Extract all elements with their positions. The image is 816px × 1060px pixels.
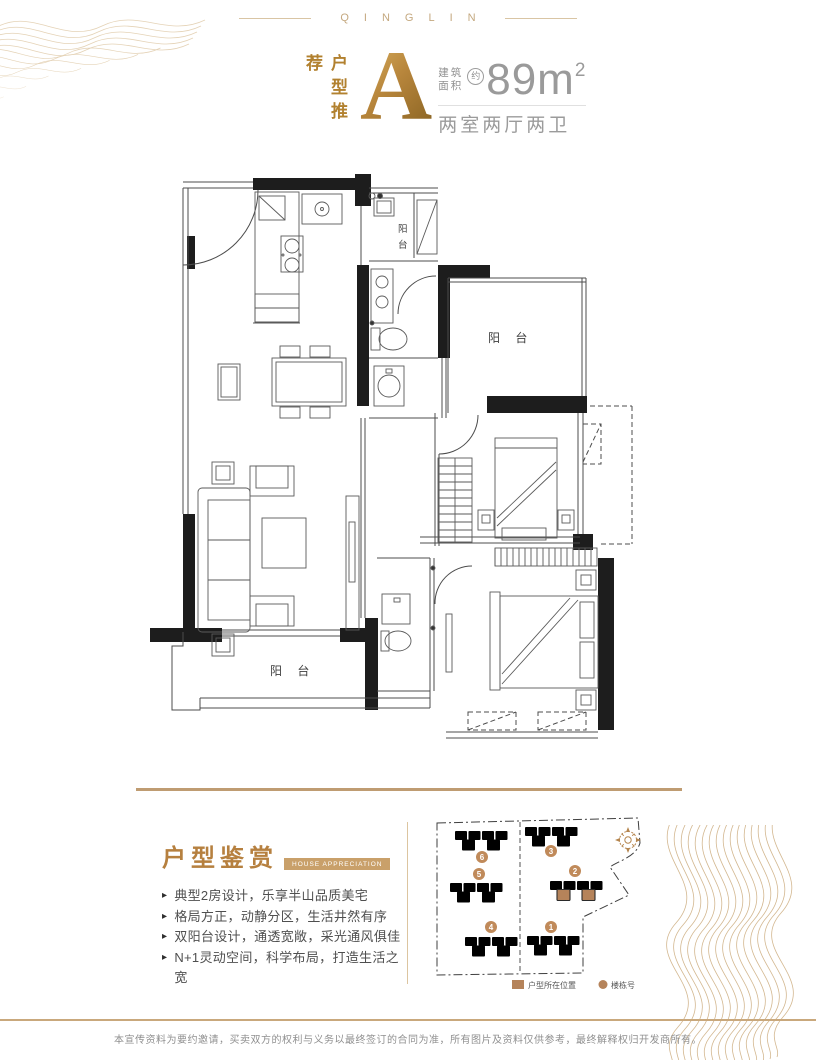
legend-building-swatch: [599, 980, 608, 989]
appreciation-title: 户型鉴赏: [162, 838, 278, 873]
bullet-arrow-icon: [162, 948, 167, 989]
compass-icon: [615, 827, 641, 853]
brand-rule-left: [239, 18, 311, 19]
area-number: 89m: [486, 55, 575, 104]
building-cluster-5: 5: [450, 868, 503, 903]
building-number: 4: [489, 923, 494, 932]
footer-divider: [0, 1019, 816, 1021]
unit-letter: A: [360, 44, 432, 128]
balcony-mid-label-2: 台: [398, 239, 408, 251]
building-number: 1: [549, 923, 554, 932]
unit-header: 户型推荐 A 建筑 面积 约 89m2 两室两厅两卫: [300, 44, 586, 142]
structural-walls: [150, 174, 614, 730]
building-cluster-6: 6: [455, 831, 508, 863]
legend-building-label: 楼栋号: [611, 980, 635, 990]
rooms-label: 两室两厅两卫: [438, 105, 586, 137]
building-cluster-3: 3: [525, 827, 578, 857]
balcony-top-label: 阳 台: [488, 330, 533, 345]
appreciation-section: 户型鉴赏 HOUSE APPRECIATION 典型2房设计，乐享半山品质美宅 …: [162, 838, 407, 989]
recommend-label: 户型推荐: [300, 54, 350, 142]
area-exponent: 2: [575, 60, 587, 81]
bullet-text: N+1灵动空间，科学布局，打造生活之宽: [174, 948, 407, 989]
area-label: 建筑 面积: [438, 67, 463, 93]
bullet-item: 双阳台设计，通透宽敞，采光通风俱佳: [162, 927, 407, 948]
highlighted-unit: [557, 890, 570, 901]
section-divider: [136, 788, 682, 791]
bullet-text: 格局方正，动静分区，生活井然有序: [174, 907, 387, 928]
brand-bar: QINGLIN: [0, 12, 816, 24]
bullet-text: 双阳台设计，通透宽敞，采光通风俱佳: [174, 927, 400, 948]
area-label-line2: 面积: [438, 80, 463, 93]
thin-walls-windows: [172, 182, 598, 738]
appreciation-tag: HOUSE APPRECIATION: [284, 858, 390, 870]
site-plan: 6 5 4 3 2: [432, 813, 667, 1008]
appreciation-bullets: 典型2房设计，乐享半山品质美宅 格局方正，动静分区，生活井然有序 双阳台设计，通…: [162, 886, 407, 989]
brochure-page: QINGLIN 户型推荐 A 建筑 面积 约 89m2 两室两厅两卫: [0, 0, 816, 1060]
building-cluster-4: 4: [465, 921, 518, 957]
balcony-mid-label-1: 阳: [398, 224, 408, 235]
bullet-text: 典型2房设计，乐享半山品质美宅: [174, 886, 368, 907]
building-number: 2: [573, 867, 578, 876]
area-value: 89m2: [486, 58, 586, 102]
building-cluster-1: 1: [527, 921, 580, 956]
bullet-arrow-icon: [162, 886, 167, 907]
legend-location-label: 户型所在位置: [528, 980, 576, 990]
area-label-line1: 建筑: [438, 67, 463, 80]
brand-rule-right: [505, 18, 577, 19]
building-number: 6: [480, 853, 485, 862]
brand-name: QINGLIN: [325, 12, 490, 24]
bullet-arrow-icon: [162, 927, 167, 948]
legend-location-swatch: [512, 980, 524, 989]
highlighted-unit: [582, 890, 595, 901]
furniture: [198, 192, 598, 710]
vertical-divider: [407, 822, 408, 984]
building-number: 3: [549, 847, 554, 856]
bullet-item: 格局方正，动静分区，生活井然有序: [162, 907, 407, 928]
footer-disclaimer: 本宣传资料为要约邀请，买卖双方的权利与义务以最终签订的合同为准，所有图片及资料仅…: [0, 1031, 816, 1046]
floor-plan: 阳 台 阳 台 阳 台: [150, 166, 665, 770]
balcony-bottom-label: 阳 台: [270, 663, 315, 678]
approx-badge: 约: [467, 68, 484, 85]
building-number: 5: [477, 870, 482, 879]
building-cluster-2: 2: [550, 865, 603, 901]
bullet-item: N+1灵动空间，科学布局，打造生活之宽: [162, 948, 407, 989]
bullet-arrow-icon: [162, 907, 167, 928]
bullet-item: 典型2房设计，乐享半山品质美宅: [162, 886, 407, 907]
